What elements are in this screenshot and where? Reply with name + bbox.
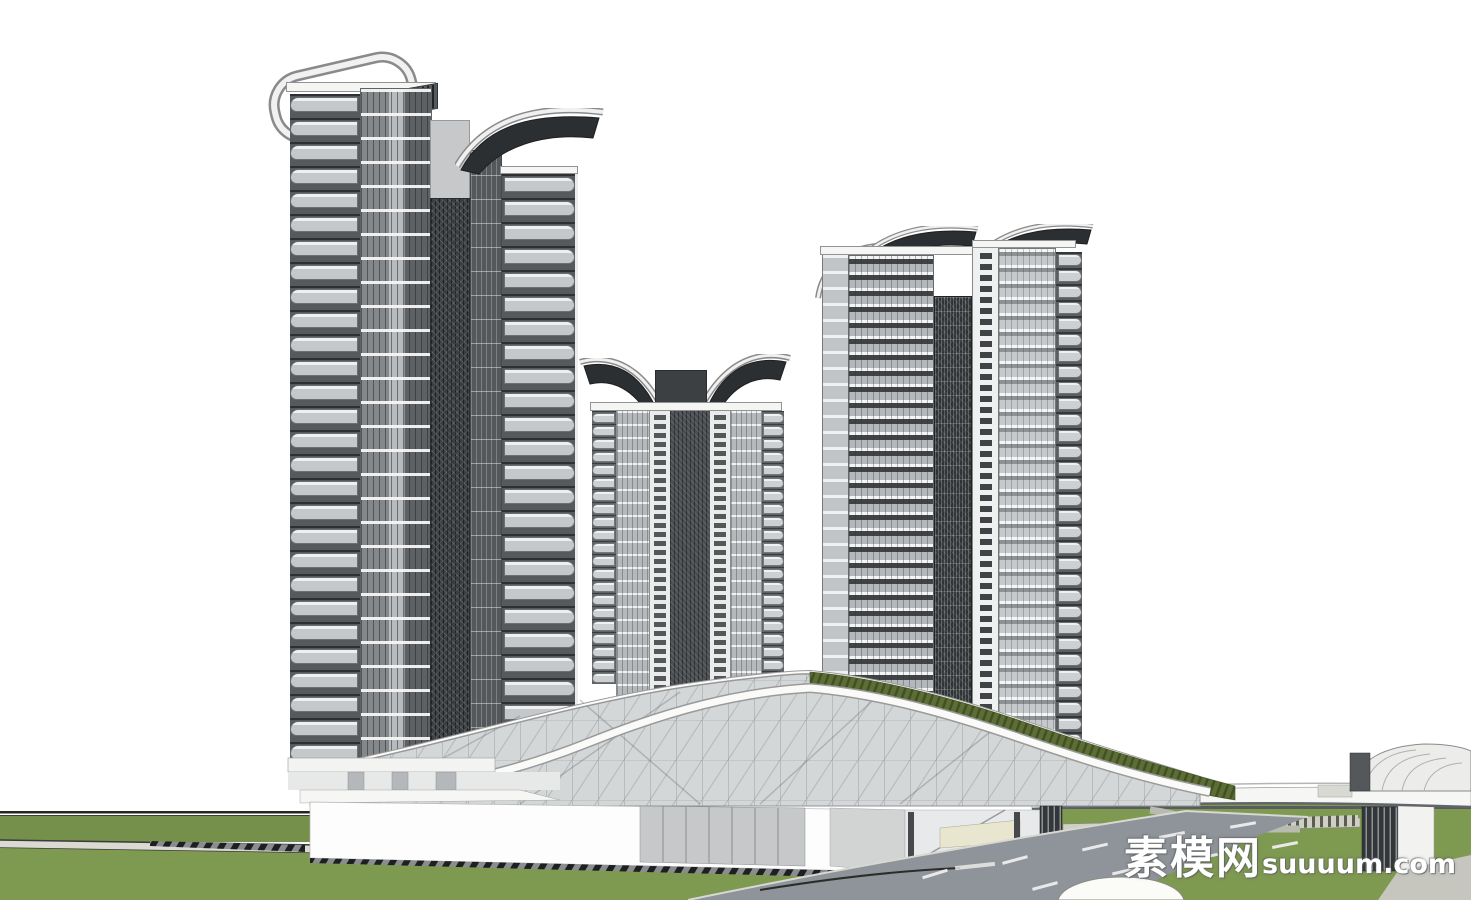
transfer-slab: [288, 758, 495, 772]
ground-podium-scene: [0, 0, 1471, 900]
canopy-stair-box: [1350, 753, 1370, 791]
watermark-latin-text: suuuum.com: [1262, 849, 1456, 880]
watermark: 素模网 suuuum.com: [1124, 822, 1456, 886]
watermark-cjk-text: 素模网: [1124, 822, 1262, 886]
render-canvas: 素模网 suuuum.com: [0, 0, 1471, 900]
